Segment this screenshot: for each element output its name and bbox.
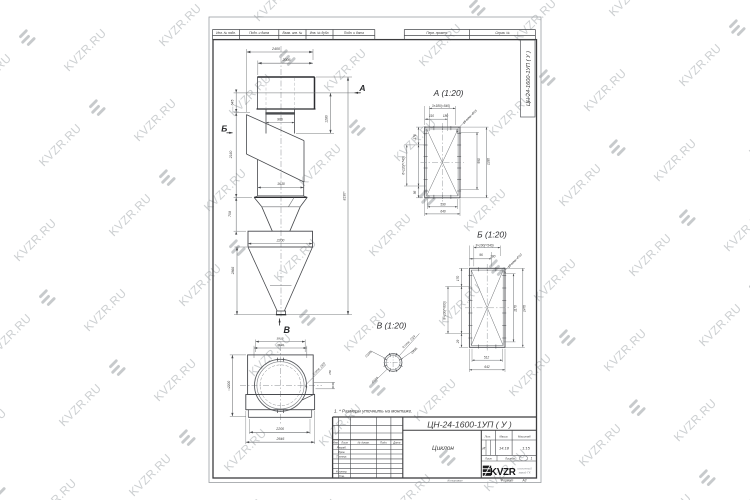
svg-text:2646: 2646 xyxy=(276,437,285,441)
svg-text:Копировал: Копировал xyxy=(448,478,463,482)
svg-text:Б: Б xyxy=(221,124,227,134)
svg-text:□2200: □2200 xyxy=(227,381,231,390)
svg-text:Листов: Листов xyxy=(504,457,515,461)
svg-text:1280: 1280 xyxy=(486,158,490,165)
svg-text:178: 178 xyxy=(413,134,417,140)
svg-text:Подп. и дата: Подп. и дата xyxy=(344,31,364,35)
svg-text:завод ГК: завод ГК xyxy=(517,470,530,474)
svg-text:Формат: Формат xyxy=(501,478,514,482)
svg-text:Масса: Масса xyxy=(500,435,508,439)
svg-text:2400: 2400 xyxy=(271,47,280,51)
svg-text:110: 110 xyxy=(429,114,434,118)
svg-text:1470: 1470 xyxy=(523,305,527,312)
svg-text:708: 708 xyxy=(228,211,232,217)
svg-text:Дата: Дата xyxy=(392,440,401,444)
svg-text:ЦН-24-1600-1УП ( У ): ЦН-24-1600-1УП ( У ) xyxy=(526,51,532,106)
svg-text:180: 180 xyxy=(490,254,496,258)
svg-text:2866: 2866 xyxy=(231,267,235,276)
svg-text:150: 150 xyxy=(328,370,332,375)
svg-text:Взам. инв. №: Взам. инв. № xyxy=(283,31,303,35)
svg-text:3×100(=540): 3×100(=540) xyxy=(475,243,493,247)
svg-text:590: 590 xyxy=(440,202,446,206)
svg-text:В: В xyxy=(284,325,291,335)
svg-text:6×120(=740): 6×120(=740) xyxy=(401,156,405,174)
svg-text:KVZR: KVZR xyxy=(490,467,516,478)
svg-text:1280: 1280 xyxy=(324,115,328,123)
svg-text:Перв. примен.: Перв. примен. xyxy=(426,31,447,35)
svg-text:Утв.: Утв. xyxy=(339,474,345,478)
svg-text:Лит.: Лит. xyxy=(484,435,492,439)
svg-text:Инв. № дубл.: Инв. № дубл. xyxy=(310,31,330,35)
svg-text:966: 966 xyxy=(277,117,283,121)
svg-text:А (1:20): А (1:20) xyxy=(433,88,464,98)
svg-text:96: 96 xyxy=(479,253,483,257)
svg-text:А: А xyxy=(358,83,365,93)
svg-text:Справ. №: Справ. № xyxy=(495,31,510,35)
svg-text:645: 645 xyxy=(231,100,235,106)
svg-text:512: 512 xyxy=(484,355,490,359)
svg-text:2006: 2006 xyxy=(282,58,291,62)
svg-text:1: 1 xyxy=(531,457,533,461)
svg-text:Подп. и дата: Подп. и дата xyxy=(249,31,269,35)
svg-text:Т.контр.: Т.контр. xyxy=(336,455,347,459)
svg-text:170: 170 xyxy=(456,276,460,282)
svg-text:Б (1:20): Б (1:20) xyxy=(477,230,507,240)
svg-text:29: 29 xyxy=(456,340,460,345)
svg-text:Лист: Лист xyxy=(484,457,493,461)
svg-text:Подп.: Подп. xyxy=(380,440,387,444)
svg-text:Циклон: Циклон xyxy=(432,445,454,452)
svg-text:8×100(=800): 8×100(=800) xyxy=(443,301,447,319)
svg-text:Разраб.: Разраб. xyxy=(337,445,347,449)
svg-text:2200: 2200 xyxy=(276,238,285,242)
svg-text:ЦН-24-1600-1УП ( У ): ЦН-24-1600-1УП ( У ) xyxy=(427,420,512,430)
svg-text:3815: 3815 xyxy=(277,336,284,340)
svg-text:640: 640 xyxy=(440,210,446,214)
svg-text:1630: 1630 xyxy=(277,182,285,186)
svg-text:№ докум.: № докум. xyxy=(358,440,370,444)
svg-text:8190*: 8190* xyxy=(342,191,346,201)
svg-text:1:15: 1:15 xyxy=(522,446,531,451)
svg-text:A3: A3 xyxy=(522,478,527,482)
svg-text:56: 56 xyxy=(413,191,417,195)
svg-text:14.18: 14.18 xyxy=(499,446,510,451)
svg-text:1. * Размеры уточнить на монта: 1. * Размеры уточнить на монтаже. xyxy=(334,408,412,413)
svg-text:Лист: Лист xyxy=(340,440,349,444)
svg-text:2160: 2160 xyxy=(229,151,233,160)
svg-text:И: И xyxy=(482,446,485,451)
svg-text:642: 642 xyxy=(484,365,490,369)
svg-text:Пров.: Пров. xyxy=(338,450,345,454)
svg-text:Масштаб: Масштаб xyxy=(518,435,531,439)
svg-text:3×180(=540): 3×180(=540) xyxy=(432,104,450,108)
svg-text:990: 990 xyxy=(477,158,481,164)
svg-text:Н.контр.: Н.контр. xyxy=(336,469,348,473)
svg-text:Изм.: Изм. xyxy=(333,440,339,444)
svg-text:В (1:20): В (1:20) xyxy=(377,321,407,331)
svg-text:2200: 2200 xyxy=(275,427,284,431)
svg-text:1170: 1170 xyxy=(513,305,517,312)
svg-text:Инв. № подл.: Инв. № подл. xyxy=(216,31,236,35)
